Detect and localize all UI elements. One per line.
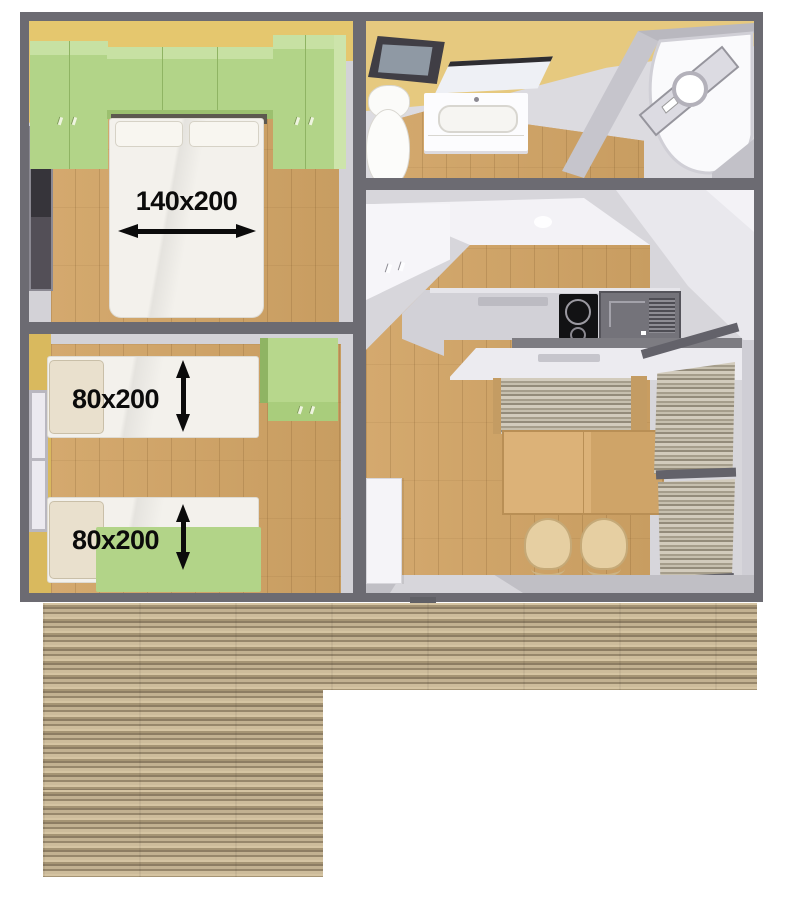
- cabinet-top-face: [107, 47, 273, 59]
- wardrobe-handle: [308, 117, 314, 126]
- entrance-door: [366, 478, 402, 584]
- cabinet-front-face: [268, 402, 338, 421]
- appliance-highlight: [609, 301, 645, 327]
- wardrobe-handle: [294, 117, 300, 126]
- wardrobe-handle: [57, 117, 63, 126]
- sink-basin: [438, 105, 518, 133]
- dimension-label-double-bed: 140x200: [109, 186, 264, 216]
- appliance-vent: [649, 298, 675, 333]
- room-bathroom: [366, 21, 754, 178]
- wall-vertical-main: [353, 21, 366, 593]
- arrow-bar: [134, 229, 240, 234]
- toilet-bowl: [366, 109, 410, 178]
- wardrobe-handle: [71, 117, 77, 126]
- bay-window-blind-upper: [654, 362, 735, 474]
- wardrobe-door-seam: [69, 41, 70, 169]
- entry-mat: [390, 575, 580, 593]
- arrowhead-right: [236, 224, 256, 238]
- faucet: [474, 97, 479, 102]
- wall-between-bedrooms: [29, 322, 366, 334]
- arrow-bar: [181, 520, 186, 554]
- deck-side: [43, 690, 323, 877]
- wall-cabinet: [260, 338, 338, 421]
- deck-upper: [43, 603, 757, 690]
- bay-window-blind-lower: [658, 479, 735, 579]
- wardrobe-left: [30, 41, 108, 169]
- window-post: [493, 378, 501, 434]
- shower-cabin: [562, 23, 754, 178]
- pillow: [115, 121, 183, 147]
- room-living-kitchen: [366, 190, 754, 593]
- cabinet-top-face: [268, 338, 338, 402]
- bench-inset: [538, 354, 600, 362]
- window-divider: [32, 458, 45, 461]
- entry-floor-strip: [366, 575, 754, 593]
- drawer-seam: [428, 135, 524, 136]
- closet-handle: [385, 263, 393, 273]
- ceiling-light: [534, 216, 552, 228]
- wall-bathroom: [353, 178, 754, 190]
- wardrobe-door-seam: [305, 35, 306, 169]
- room-double-bedroom: 140x200: [29, 21, 353, 322]
- dimension-arrow-vertical: [176, 504, 190, 570]
- dining-table: [502, 430, 664, 515]
- arrowhead-down: [176, 414, 190, 432]
- window-blind: [501, 378, 639, 434]
- room-twin-bedroom: 80x200 80x200: [29, 334, 353, 593]
- appliance-dot: [641, 331, 646, 335]
- dimension-label-single-bed-bottom: 80x200: [53, 525, 178, 555]
- burner: [565, 299, 591, 325]
- arrow-bar: [181, 376, 186, 416]
- dimension-arrow-horizontal: [118, 224, 256, 238]
- bathroom-mirror-window: [368, 35, 448, 85]
- wardrobe-side-face: [334, 35, 346, 169]
- bedroom2-window: [29, 390, 48, 532]
- cabinet-seam: [217, 47, 218, 119]
- floorplan-image: 140x200: [0, 0, 800, 900]
- counter-sink-inset: [478, 297, 548, 306]
- table-seam: [583, 432, 584, 513]
- sink-vanity: [424, 93, 528, 151]
- bay-frame-mid: [656, 468, 736, 480]
- cabinet-seam: [162, 47, 163, 119]
- house-outline: 140x200: [20, 12, 763, 602]
- pillow: [189, 121, 259, 147]
- window-post: [631, 376, 647, 436]
- toilet: [366, 85, 410, 178]
- chair: [580, 518, 628, 570]
- arrowhead-down: [176, 552, 190, 570]
- closet-handle: [398, 261, 406, 271]
- vanity-mirror: [435, 56, 553, 93]
- kitchen-appliance: [599, 291, 681, 340]
- dimension-label-single-bed-top: 80x200: [53, 384, 178, 414]
- overhead-cabinet: [107, 47, 273, 119]
- mirror-glass: [378, 43, 436, 77]
- right-wall-face: [742, 340, 754, 590]
- chair: [524, 518, 572, 570]
- double-bed: [109, 118, 264, 318]
- wardrobe-right: [273, 35, 346, 169]
- dimension-arrow-vertical: [176, 360, 190, 432]
- cooktop: [559, 294, 598, 339]
